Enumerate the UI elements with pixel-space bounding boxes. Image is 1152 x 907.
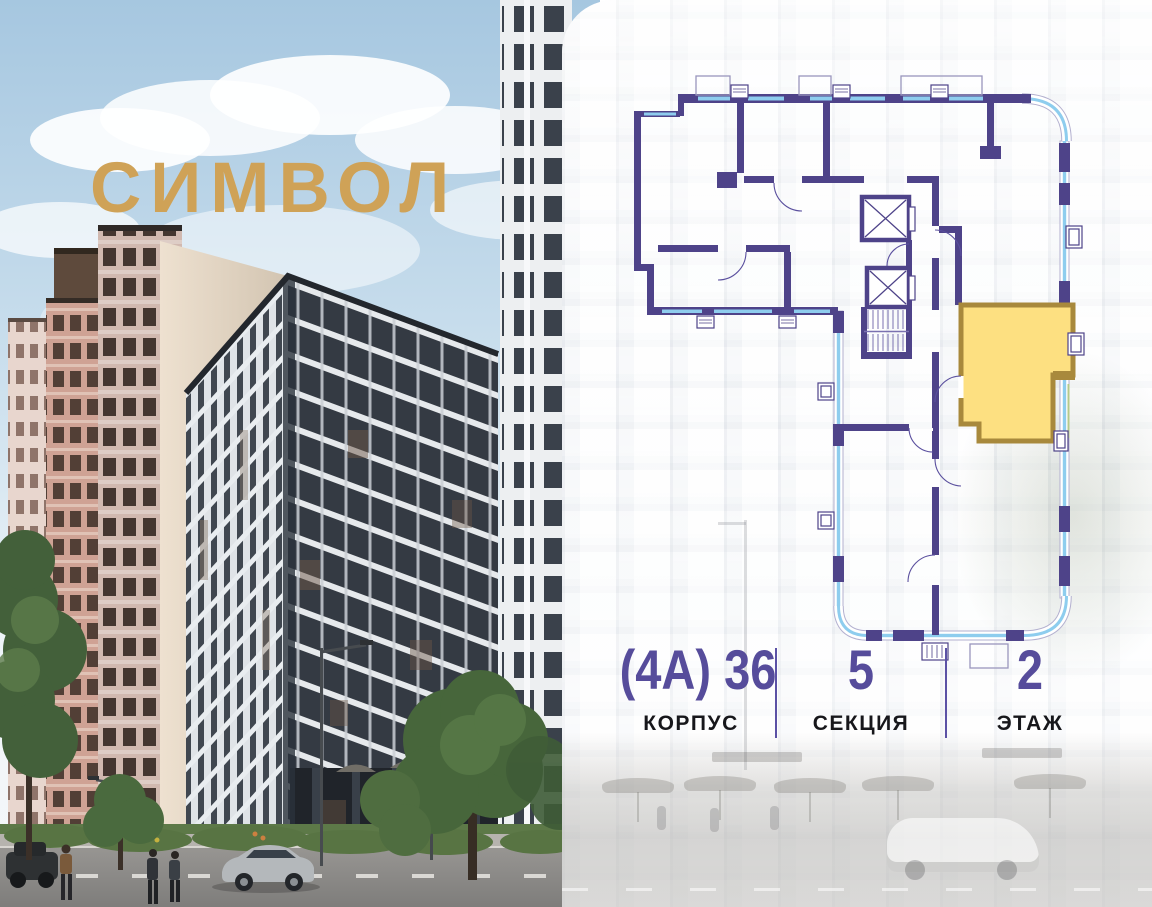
highlighted-apartment[interactable] [935, 305, 1075, 441]
building-photo-art [0, 0, 600, 907]
elevator-icon [862, 197, 915, 240]
page: СИМВОЛ [0, 0, 1152, 907]
elevator-icon [867, 268, 915, 307]
stairs-icon [864, 310, 909, 351]
floor-plan-panel: (4А) 36 КОРПУС 5 СЕКЦИЯ 2 ЭТАЖ [562, 0, 1152, 907]
building-photo: СИМВОЛ [0, 0, 600, 907]
interior-walls [658, 103, 1001, 635]
apartment-door-gap [959, 376, 964, 398]
brand-logo: СИМВОЛ [90, 148, 560, 229]
ac-unit-icon [697, 85, 948, 660]
floor-plan [562, 0, 1152, 907]
